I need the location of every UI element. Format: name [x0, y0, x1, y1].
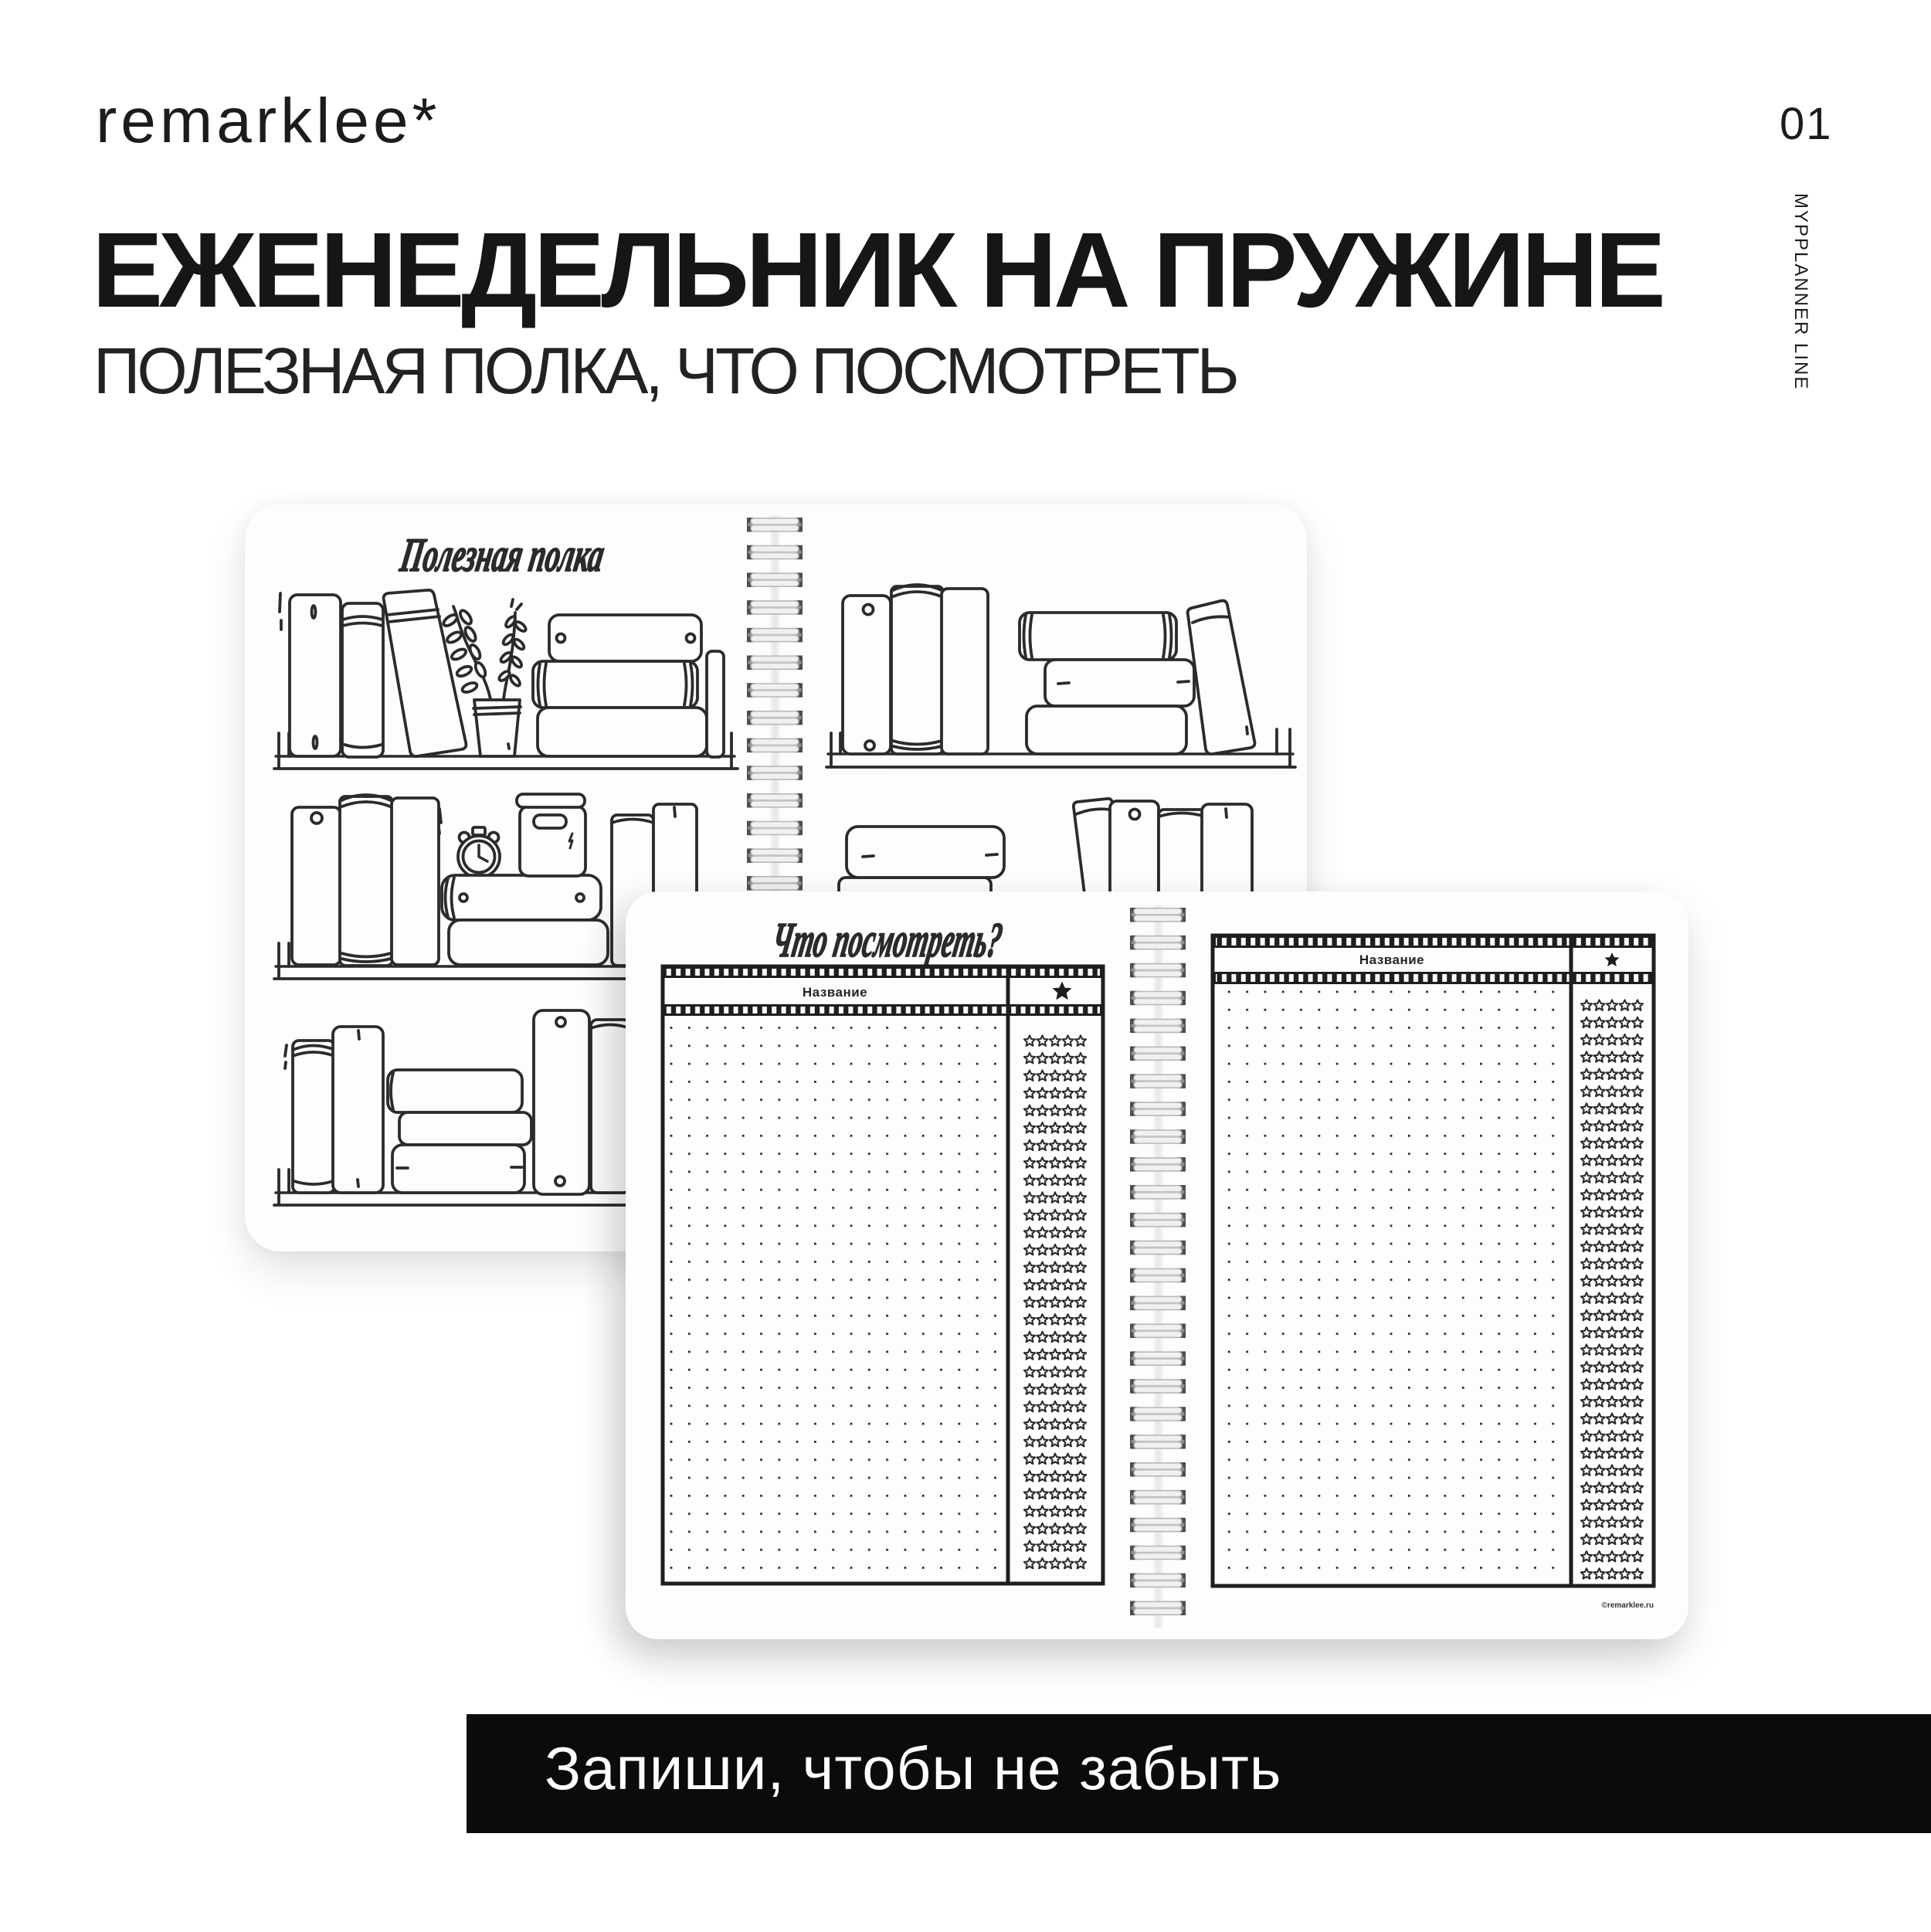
svg-text:Полезная полка: Полезная полка [396, 528, 609, 581]
svg-text:Что посмотреть?: Что посмотреть? [769, 912, 1006, 966]
svg-text:Название: Название [1359, 952, 1424, 967]
svg-text:©remarklee.ru: ©remarklee.ru [1602, 1601, 1654, 1610]
svg-text:Название: Название [803, 985, 867, 1000]
